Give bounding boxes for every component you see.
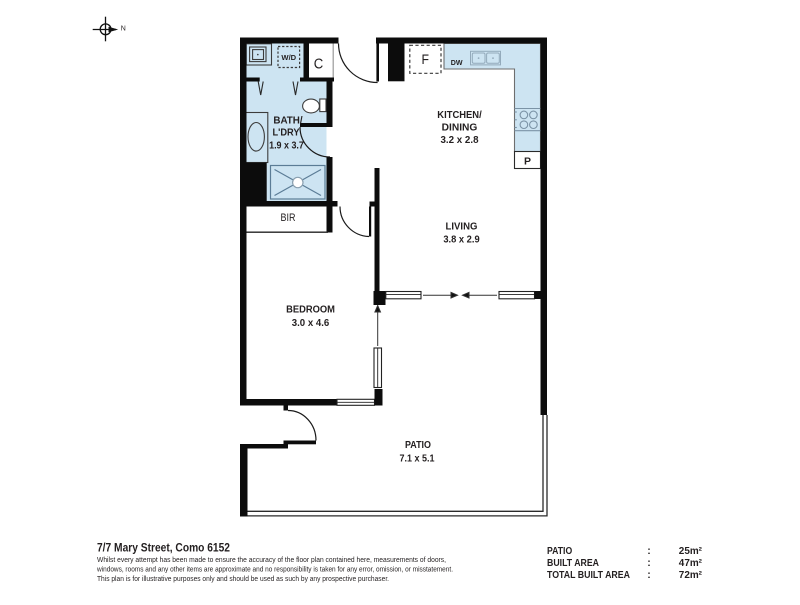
svg-text:P: P [524, 155, 531, 167]
svg-text::: : [647, 569, 651, 581]
svg-text:L'DRY: L'DRY [273, 128, 300, 139]
svg-text:W/D: W/D [281, 53, 296, 62]
svg-text:BATH/: BATH/ [273, 116, 302, 127]
svg-text:LIVING: LIVING [446, 222, 478, 233]
svg-text:windows, rooms and any other i: windows, rooms and any other items are a… [96, 567, 453, 574]
svg-text:25m²: 25m² [679, 545, 703, 557]
svg-text:This plan is for illustrative: This plan is for illustrative purposes o… [97, 576, 389, 583]
svg-text:3.0 x 4.6: 3.0 x 4.6 [292, 318, 330, 329]
svg-text:PATIO: PATIO [547, 545, 572, 557]
svg-text:47m²: 47m² [679, 557, 703, 569]
svg-text:BIR: BIR [281, 212, 296, 224]
svg-text:3.8 x 2.9: 3.8 x 2.9 [443, 235, 480, 246]
svg-text:DINING: DINING [442, 123, 478, 134]
svg-text:Whilst every attempt has been: Whilst every attempt has been made to en… [97, 557, 446, 564]
svg-text:DW: DW [451, 58, 463, 67]
svg-text:72m²: 72m² [679, 569, 703, 581]
svg-text:PATIO: PATIO [405, 440, 431, 451]
svg-text:BEDROOM: BEDROOM [286, 305, 335, 316]
svg-text:1.9 x 3.7: 1.9 x 3.7 [269, 141, 304, 152]
svg-text:F: F [422, 51, 430, 67]
svg-text:3.2 x 2.8: 3.2 x 2.8 [441, 135, 479, 146]
svg-text::: : [647, 557, 651, 569]
svg-text:KITCHEN/: KITCHEN/ [437, 110, 482, 121]
svg-text:N: N [121, 25, 126, 32]
svg-text::: : [647, 545, 651, 557]
svg-text:TOTAL BUILT AREA: TOTAL BUILT AREA [547, 569, 630, 581]
svg-text:7/7 Mary Street, Como 6152: 7/7 Mary Street, Como 6152 [97, 543, 230, 555]
svg-text:C: C [314, 56, 324, 73]
svg-text:7.1 x 5.1: 7.1 x 5.1 [400, 454, 435, 465]
svg-text:BUILT AREA: BUILT AREA [547, 557, 599, 569]
